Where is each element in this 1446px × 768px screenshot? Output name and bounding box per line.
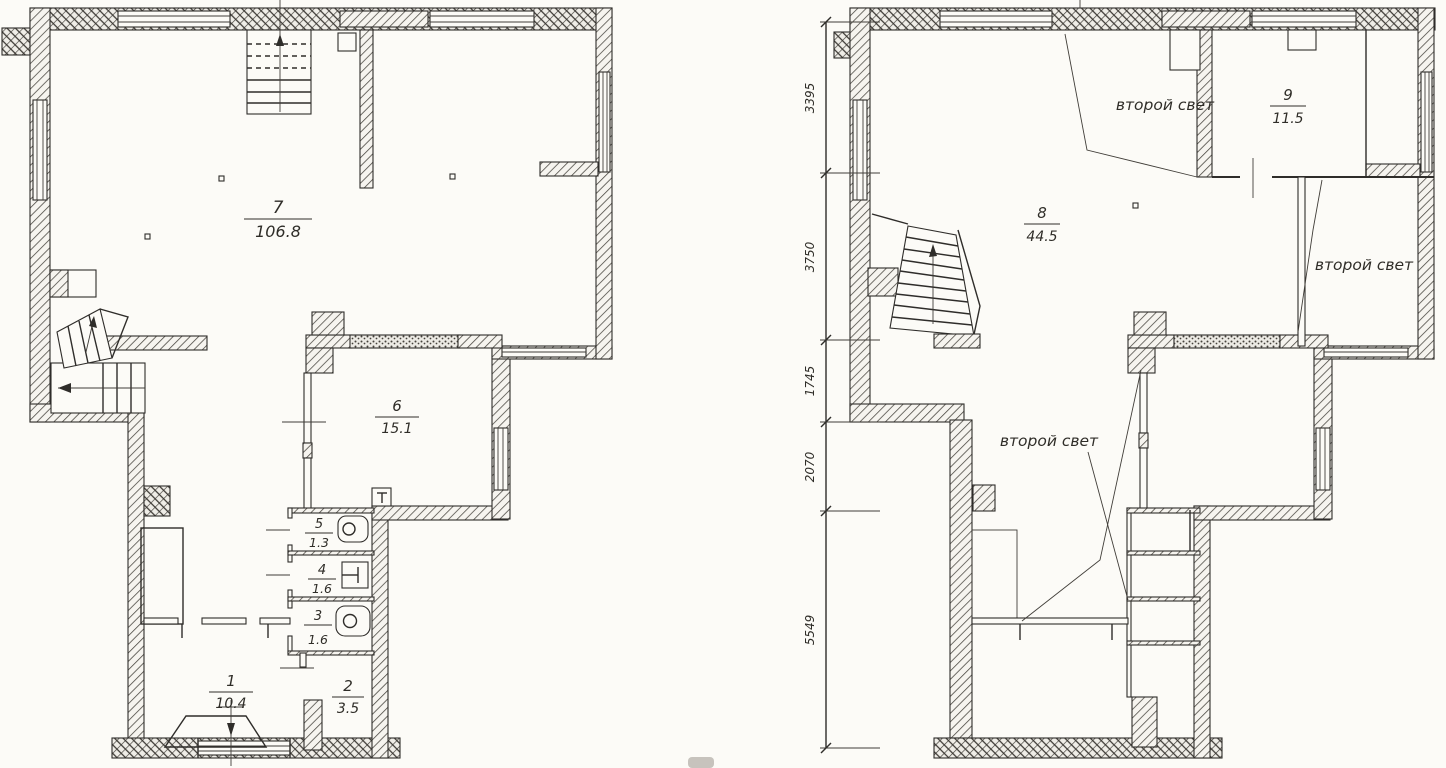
insulated-partition [1174,335,1280,348]
wall-pier [144,486,170,516]
column [1134,312,1166,335]
column [306,348,333,373]
window [1324,348,1408,357]
wall-pier [868,268,898,296]
window [599,72,610,172]
paper-background [0,0,1446,768]
window [33,100,47,200]
window [1252,11,1356,27]
window [1421,72,1432,172]
wall-pier [304,700,322,750]
dimension-label: 3395 [803,83,817,114]
window [430,11,534,27]
window [118,11,230,27]
svg-text:106.8: 106.8 [255,222,301,241]
toilet-icon [336,606,370,636]
dimension-label: 3750 [803,241,817,272]
wall-stub [1366,164,1420,177]
window [502,348,586,357]
svg-text:11.5: 11.5 [1272,111,1303,127]
svg-text:1: 1 [226,672,236,690]
insulated-partition [350,335,460,348]
svg-text:8: 8 [1037,204,1047,222]
svg-text:44.5: 44.5 [1026,229,1057,245]
svg-text:15.1: 15.1 [381,421,412,437]
second-light-label: второй свет [1000,432,1099,450]
svg-text:5: 5 [315,517,323,532]
svg-text:3.5: 3.5 [337,701,359,717]
floor-plan-drawing: 7 106.8 6 15.1 5 1.3 4 1.6 3 1.6 1 10.4 [0,0,1446,768]
scan-smudge [688,757,714,768]
svg-text:10.4: 10.4 [215,696,246,712]
column [312,312,344,335]
dimension-label: 1745 [803,366,817,397]
wall-protrusion [2,28,30,55]
partition-wall [360,30,373,188]
svg-text:1.6: 1.6 [312,581,332,596]
column [338,33,356,51]
window [1316,428,1330,490]
dimension-label: 2070 [803,451,817,482]
wall-return [1170,30,1200,70]
svg-text:3: 3 [314,609,322,624]
wall-pier [1132,697,1157,747]
svg-text:9: 9 [1283,86,1293,104]
window [494,428,508,490]
void-edge-wall [1298,177,1305,346]
svg-text:1.6: 1.6 [308,632,328,647]
svg-text:2: 2 [343,677,353,695]
wall-return [1288,30,1316,50]
column [1128,348,1155,373]
wall-stub [540,162,598,176]
entry-opening [198,741,290,755]
window [853,100,867,200]
svg-text:1.3: 1.3 [309,535,329,550]
svg-text:4: 4 [318,563,326,578]
second-light-label: второй свет [1315,256,1414,274]
svg-text:6: 6 [392,397,402,415]
scanned-floor-plan-document: 7 106.8 6 15.1 5 1.3 4 1.6 3 1.6 1 10.4 [0,0,1446,768]
wall-pier [973,485,995,511]
window [940,11,1052,27]
svg-text:7: 7 [273,198,284,218]
survey-mark [1133,203,1138,208]
dimension-label: 5549 [803,615,817,646]
second-light-label: второй свет [1116,96,1215,114]
